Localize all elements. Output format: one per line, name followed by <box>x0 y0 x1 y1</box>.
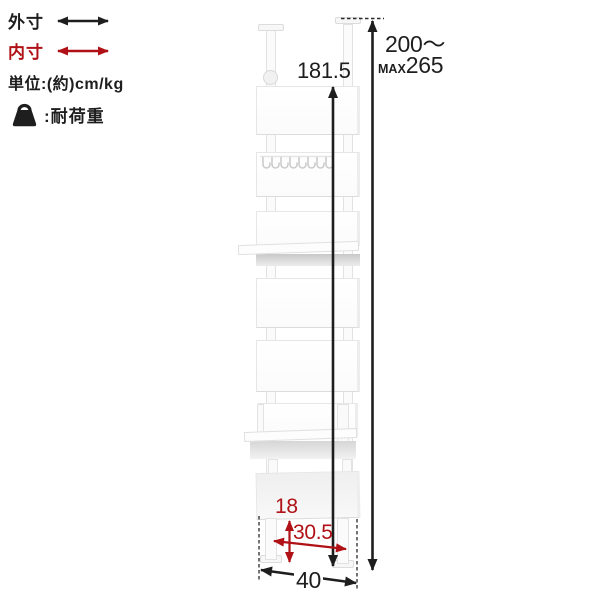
product-dimension-diagram: 外寸 内寸 単位:(約)cm/kg <box>0 0 600 600</box>
inner-width-label: 30.5 <box>293 521 333 545</box>
hooks-row <box>263 158 333 169</box>
outer-height-max-value: 265 <box>406 55 443 76</box>
red-double-arrow-icon <box>52 43 114 59</box>
outer-height-max: MAX265 <box>378 55 445 80</box>
outer-width-label: 40 <box>294 567 323 594</box>
outer-height-max-prefix: MAX <box>378 59 406 80</box>
outer-height-label: 200～ MAX265 <box>378 33 445 80</box>
weight-icon <box>8 100 41 128</box>
load-capacity-label: :耐荷重 <box>44 102 105 127</box>
legend-load-capacity: :耐荷重 <box>8 100 124 128</box>
legend: 外寸 内寸 単位:(約)cm/kg <box>8 8 124 128</box>
legend-outer-dimension: 外寸 <box>8 8 124 33</box>
base-clearance-label: 18 <box>275 495 298 519</box>
inner-dim-label: 内寸 <box>8 38 44 63</box>
legend-inner-dimension: 内寸 <box>8 38 124 63</box>
unit-label: 単位:(約)cm/kg <box>8 70 124 94</box>
black-double-arrow-icon <box>52 13 114 29</box>
outer-dim-label: 外寸 <box>8 8 44 33</box>
inner-height-label: 181.5 <box>297 58 351 84</box>
